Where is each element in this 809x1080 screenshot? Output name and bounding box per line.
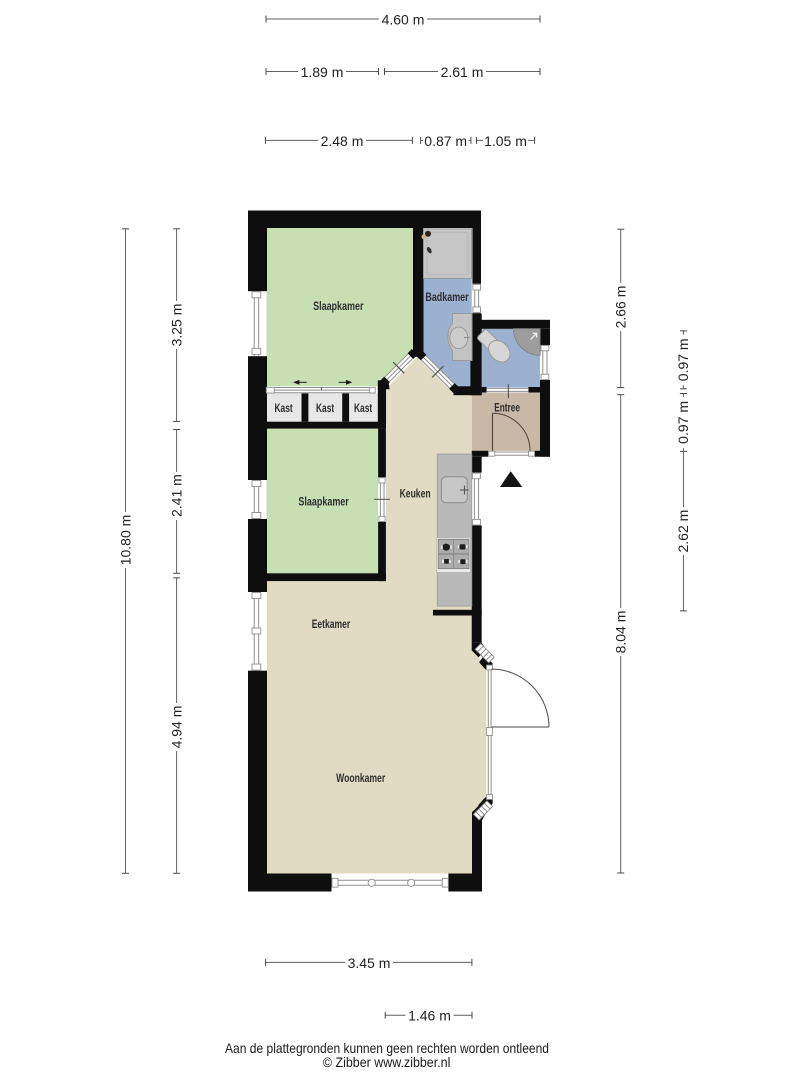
svg-text:0.97 m: 0.97 m [675, 338, 691, 381]
svg-text:4.60 m: 4.60 m [382, 12, 425, 28]
svg-text:2.66 m: 2.66 m [613, 286, 629, 329]
svg-text:3.45 m: 3.45 m [348, 955, 391, 971]
svg-text:Slaapkamer: Slaapkamer [298, 496, 349, 508]
svg-text:Entree: Entree [494, 402, 520, 414]
svg-text:1.05 m: 1.05 m [484, 133, 527, 149]
svg-text:2.61 m: 2.61 m [441, 64, 484, 80]
svg-text:10.80 m: 10.80 m [117, 515, 133, 566]
svg-text:0.97 m: 0.97 m [675, 401, 691, 444]
svg-text:0.87 m: 0.87 m [424, 133, 467, 149]
svg-text:2.48 m: 2.48 m [321, 133, 364, 149]
svg-text:Kast: Kast [354, 403, 372, 415]
svg-text:Eetkamer: Eetkamer [312, 619, 351, 631]
svg-text:Woonkamer: Woonkamer [336, 773, 385, 785]
svg-text:Kast: Kast [316, 403, 334, 415]
svg-text:1.89 m: 1.89 m [301, 64, 344, 80]
svg-text:Slaapkamer: Slaapkamer [313, 301, 364, 313]
svg-text:© Zibber www.zibber.nl: © Zibber www.zibber.nl [323, 1055, 451, 1070]
svg-text:Keuken: Keuken [400, 488, 431, 500]
svg-text:Badkamer: Badkamer [425, 292, 469, 304]
svg-text:2.41 m: 2.41 m [168, 474, 184, 517]
svg-text:8.04 m: 8.04 m [613, 611, 629, 654]
svg-text:4.94 m: 4.94 m [168, 706, 184, 749]
svg-text:1.46 m: 1.46 m [408, 1008, 451, 1024]
svg-text:Aan de plattegronden kunnen ge: Aan de plattegronden kunnen geen rechten… [225, 1041, 549, 1056]
svg-text:3.25 m: 3.25 m [168, 304, 184, 347]
svg-text:2.62 m: 2.62 m [675, 510, 691, 553]
svg-text:Kast: Kast [275, 403, 293, 415]
